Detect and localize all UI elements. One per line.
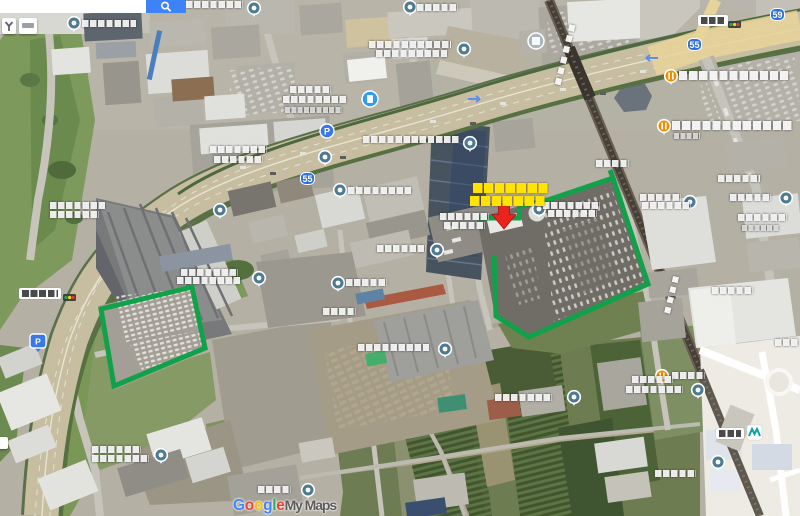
svg-text:P: P: [35, 337, 41, 347]
svg-text:P: P: [324, 127, 330, 137]
